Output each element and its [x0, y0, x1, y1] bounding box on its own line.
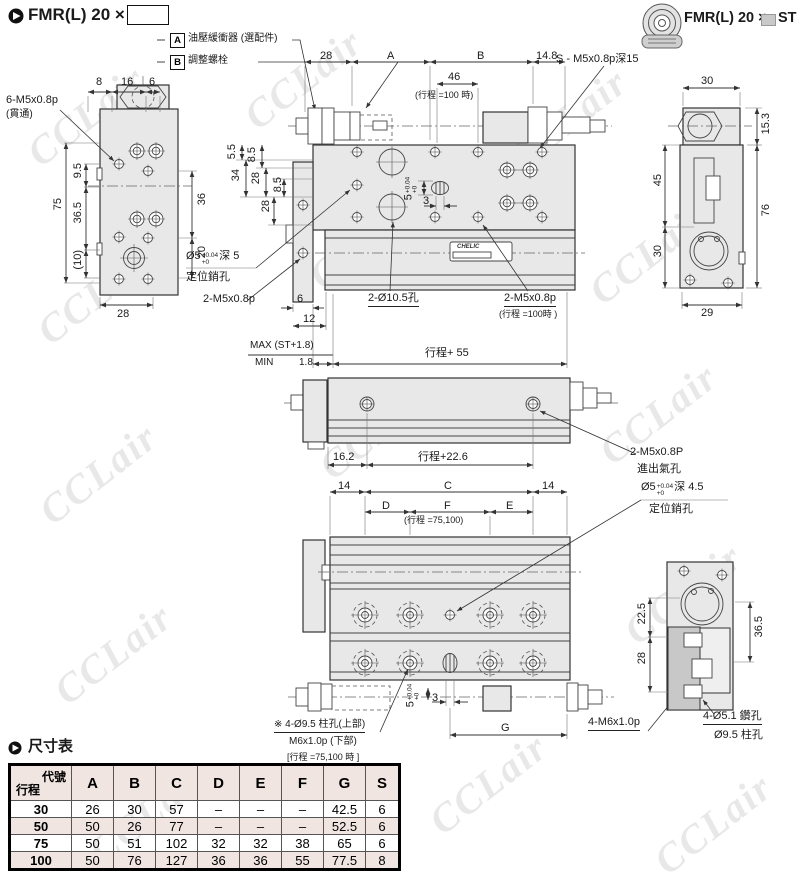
value-cell: 51 [114, 835, 156, 852]
callout-pin-hole-2: 定位銷孔 [649, 503, 693, 516]
dim-min: MIN [255, 357, 273, 369]
column-header: F [282, 765, 324, 801]
value-cell: – [240, 801, 282, 818]
dim: C [444, 480, 452, 493]
dim: D [382, 500, 390, 513]
brand-nameplate: CHELIC [457, 244, 479, 251]
dim-note: (行程 =100 時) [415, 90, 473, 100]
dim: F [444, 500, 451, 513]
table-row: 30 26 30 57 – – – 42.5 6 [10, 801, 400, 818]
dim: 28 [250, 172, 263, 184]
callout-pin-hole: Ø5+0.04+0深 4.5 [641, 481, 704, 497]
column-header: B [114, 765, 156, 801]
dimension-table: 代號 行程 A B C D E F G S 30 26 30 57 – – – … [8, 763, 401, 871]
note-leaders [157, 40, 398, 110]
column-header: C [156, 765, 198, 801]
value-cell: 26 [114, 818, 156, 835]
slot-width: 5 [404, 701, 416, 707]
callout-s-thread: S - M5x0.8p深15 [556, 53, 639, 66]
value-cell: 36 [198, 852, 240, 870]
section-bullet-icon [8, 8, 24, 24]
value-cell: 8 [366, 852, 400, 870]
value-cell: 50 [72, 835, 114, 852]
stroke-cell: 75 [10, 835, 72, 852]
table-row: 100 50 76 127 36 36 55 77.5 8 [10, 852, 400, 870]
slot-width: 5 [402, 194, 414, 200]
view-side-right [662, 88, 762, 309]
dim: 28 [636, 652, 649, 664]
table-corner-cell: 代號 行程 [10, 765, 72, 801]
stroke-cell: 100 [10, 852, 72, 870]
dim: B [477, 50, 484, 63]
dim: 76 [760, 204, 773, 216]
pin-depth: 深 5 [219, 250, 239, 262]
dim-stroke: 行程+ 55 [425, 347, 469, 360]
dim: 14 [338, 480, 350, 493]
dim: 45 [652, 174, 665, 186]
page-title: FMR(L) 20 × [28, 5, 125, 25]
callout-6m5: 6-M5x0.8p [6, 94, 58, 107]
value-cell: 65 [324, 835, 366, 852]
column-header: G [324, 765, 366, 801]
value-cell: 30 [114, 801, 156, 818]
callout-drill: 4-Ø5.1 鑽孔 [703, 710, 762, 725]
value-cell: 42.5 [324, 801, 366, 818]
dim: 46 [448, 71, 460, 84]
note-a-box: A [170, 33, 185, 48]
value-cell: 102 [156, 835, 198, 852]
table-bullet-icon [8, 741, 22, 755]
dim: 28 [117, 308, 129, 321]
value-cell: 32 [198, 835, 240, 852]
value-cell: 55 [282, 852, 324, 870]
callout-counterbore-1: ※ 4-Ø9.5 柱孔(上部) [274, 719, 365, 733]
dim: 5.5 [226, 144, 239, 159]
callout-through: (貫通) [6, 109, 33, 121]
dim: E [506, 500, 513, 513]
value-cell: 36 [240, 852, 282, 870]
value-cell: 6 [366, 801, 400, 818]
dim: 8 [96, 76, 102, 89]
dim: 8.5 [246, 147, 259, 162]
dim: 30 [701, 75, 713, 88]
dim: 36 [196, 193, 209, 205]
corner-label-bottom: 行程 [16, 781, 40, 798]
page-title-suffix: ST [778, 10, 797, 27]
stroke-cell: 50 [10, 818, 72, 835]
value-cell: 50 [72, 818, 114, 835]
dim: 36.5 [72, 202, 85, 223]
dim: 34 [230, 169, 243, 181]
pin-dia: Ø5 [186, 250, 201, 262]
value-cell: – [198, 818, 240, 835]
dim: A [387, 50, 394, 63]
dim: 30 [652, 245, 665, 257]
view-end-plate [60, 76, 197, 309]
drawing-linework [0, 0, 800, 873]
value-cell: 57 [156, 801, 198, 818]
dim-min-value: 1.8 [299, 357, 313, 369]
note-b-box: B [170, 55, 185, 70]
tolerance-lower: +0 [414, 684, 421, 700]
dim: 75 [52, 198, 65, 210]
value-cell: 52.5 [324, 818, 366, 835]
value-cell: 26 [72, 801, 114, 818]
callout-counterbore-2: M6x1.0p (下部) [289, 736, 357, 748]
value-cell: 77.5 [324, 852, 366, 870]
tolerance-lower: +0 [412, 177, 419, 193]
dim: 28 [320, 50, 332, 63]
column-header: S [366, 765, 400, 801]
dim: 29 [701, 307, 713, 320]
dim: 14.8 [536, 50, 557, 63]
value-cell: – [198, 801, 240, 818]
dim: 28 [260, 200, 273, 212]
dim: 6 [149, 76, 155, 89]
value-cell: 77 [156, 818, 198, 835]
callout-2holes: 2-Ø10.5孔 [368, 292, 419, 307]
column-header: A [72, 765, 114, 801]
tolerance-lower: +0 [657, 491, 673, 498]
view-section-right [648, 562, 754, 714]
value-cell: – [282, 818, 324, 835]
catalog-page: CCLair CCLair CCLair CCLair CCLair CCLai… [0, 0, 800, 873]
pin-dia: Ø5 [641, 481, 656, 493]
value-cell: 76 [114, 852, 156, 870]
dim: 22.5 [636, 603, 649, 624]
note-b-text: 調整螺栓 [188, 55, 228, 67]
value-cell: 50 [72, 852, 114, 870]
dim: (10) [72, 250, 85, 270]
value-cell: – [240, 818, 282, 835]
column-header: D [198, 765, 240, 801]
slot-tolerance-label: 5+0.04+0 [404, 683, 420, 708]
dim: 36.5 [753, 616, 766, 637]
view-bottom-main [288, 492, 728, 739]
dim: 3 [423, 195, 429, 208]
callout-2m5-b: 2-M5x0.8p [504, 292, 556, 307]
dim: G [501, 722, 510, 735]
table-row: 50 50 26 77 – – – 52.5 6 [10, 818, 400, 835]
callout-counterbore-3: [行程 =75,100 時 ] [287, 752, 359, 762]
callout-cbore: Ø9.5 柱孔 [714, 729, 763, 742]
product-thumbnail-icon [636, 2, 688, 50]
page-title-right: FMR(L) 20 × [684, 10, 767, 27]
dim: 14 [542, 480, 554, 493]
dim: 15.3 [760, 113, 773, 134]
note-a-text: 油壓緩衝器 (選配件) [188, 33, 277, 45]
callout-4m6: 4-M6x1.0p [588, 716, 640, 731]
callout-pin-hole: Ø5+0.04+0深 5 [186, 250, 239, 266]
dim: 9.5 [72, 163, 85, 178]
table-header-row: 代號 行程 A B C D E F G S [10, 765, 400, 801]
stroke-code-box-small [761, 14, 776, 26]
tolerance-lower: +0 [202, 260, 218, 267]
view-top-main [186, 62, 612, 368]
dim-note: (行程 =100時 ) [499, 309, 557, 319]
callout-port-2: 進出氣孔 [637, 463, 681, 476]
value-cell: 38 [282, 835, 324, 852]
table-row: 75 50 51 102 32 32 38 65 6 [10, 835, 400, 852]
dim: 16 [121, 76, 133, 89]
dim-note: (行程 =75,100) [404, 515, 463, 525]
value-cell: 6 [366, 818, 400, 835]
callout-port: 2-M5x0.8P [630, 446, 683, 459]
note-b-key: B [174, 57, 181, 68]
note-a-key: A [174, 35, 181, 46]
dim: 12 [303, 313, 315, 326]
value-cell: – [282, 801, 324, 818]
value-cell: 127 [156, 852, 198, 870]
stroke-code-box [127, 5, 169, 25]
corner-label-top: 代號 [42, 768, 66, 785]
table-title: 尺寸表 [28, 738, 73, 755]
dim: 8.5 [272, 177, 285, 192]
column-header: E [240, 765, 282, 801]
pin-depth: 深 4.5 [674, 481, 703, 493]
callout-2m5: 2-M5x0.8p [203, 293, 255, 306]
dim-max: MAX (ST+1.8) [250, 340, 314, 352]
dim-stroke: 行程+22.6 [418, 451, 468, 464]
value-cell: 32 [240, 835, 282, 852]
slot-tolerance-label: 5+0.04+0 [402, 176, 418, 201]
dim: 3 [432, 692, 438, 705]
stroke-cell: 30 [10, 801, 72, 818]
dim: 16.2 [333, 451, 354, 464]
callout-pin-hole-2: 定位銷孔 [186, 271, 230, 284]
value-cell: 6 [366, 835, 400, 852]
dim: 6 [297, 293, 303, 306]
